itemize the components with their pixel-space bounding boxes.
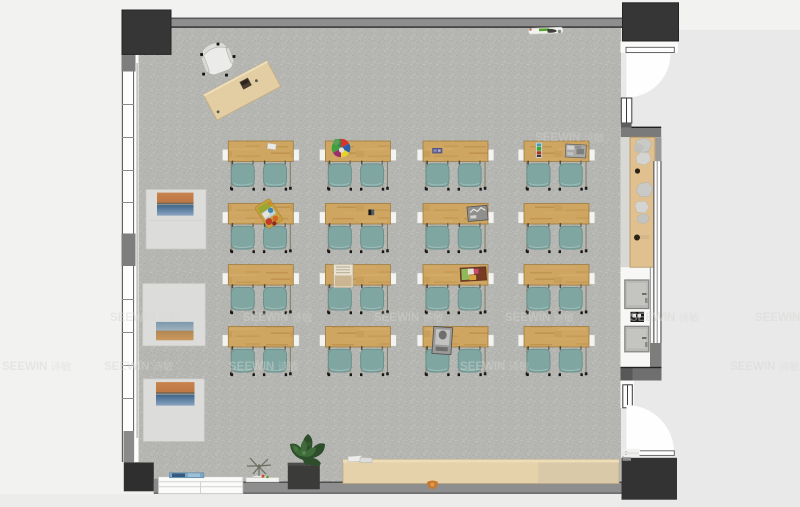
svg-text:SEEWIN 诗敏: SEEWIN 诗敏 xyxy=(104,360,174,373)
svg-text:SEEWIN 诗敏: SEEWIN 诗敏 xyxy=(505,311,575,324)
svg-text:SEEWIN 诗敏: SEEWIN 诗敏 xyxy=(630,311,700,324)
svg-text:SEEWIN 诗敏: SEEWIN 诗敏 xyxy=(243,311,313,324)
svg-text:SEEWIN 诗敏: SEEWIN 诗敏 xyxy=(2,360,72,373)
svg-text:SEEWIN 诗敏: SEEWIN 诗敏 xyxy=(730,360,800,373)
svg-text:SEEWIN 诗敏: SEEWIN 诗敏 xyxy=(755,311,800,324)
svg-text:SEEWIN 诗敏: SEEWIN 诗敏 xyxy=(460,360,530,373)
svg-text:SEEWIN 诗敏: SEEWIN 诗敏 xyxy=(374,311,444,324)
svg-text:SEEWIN 诗敏: SEEWIN 诗敏 xyxy=(110,311,180,324)
svg-text:SEEWIN 诗敏: SEEWIN 诗敏 xyxy=(535,131,605,144)
svg-text:SEEWIN 诗敏: SEEWIN 诗敏 xyxy=(229,360,299,373)
